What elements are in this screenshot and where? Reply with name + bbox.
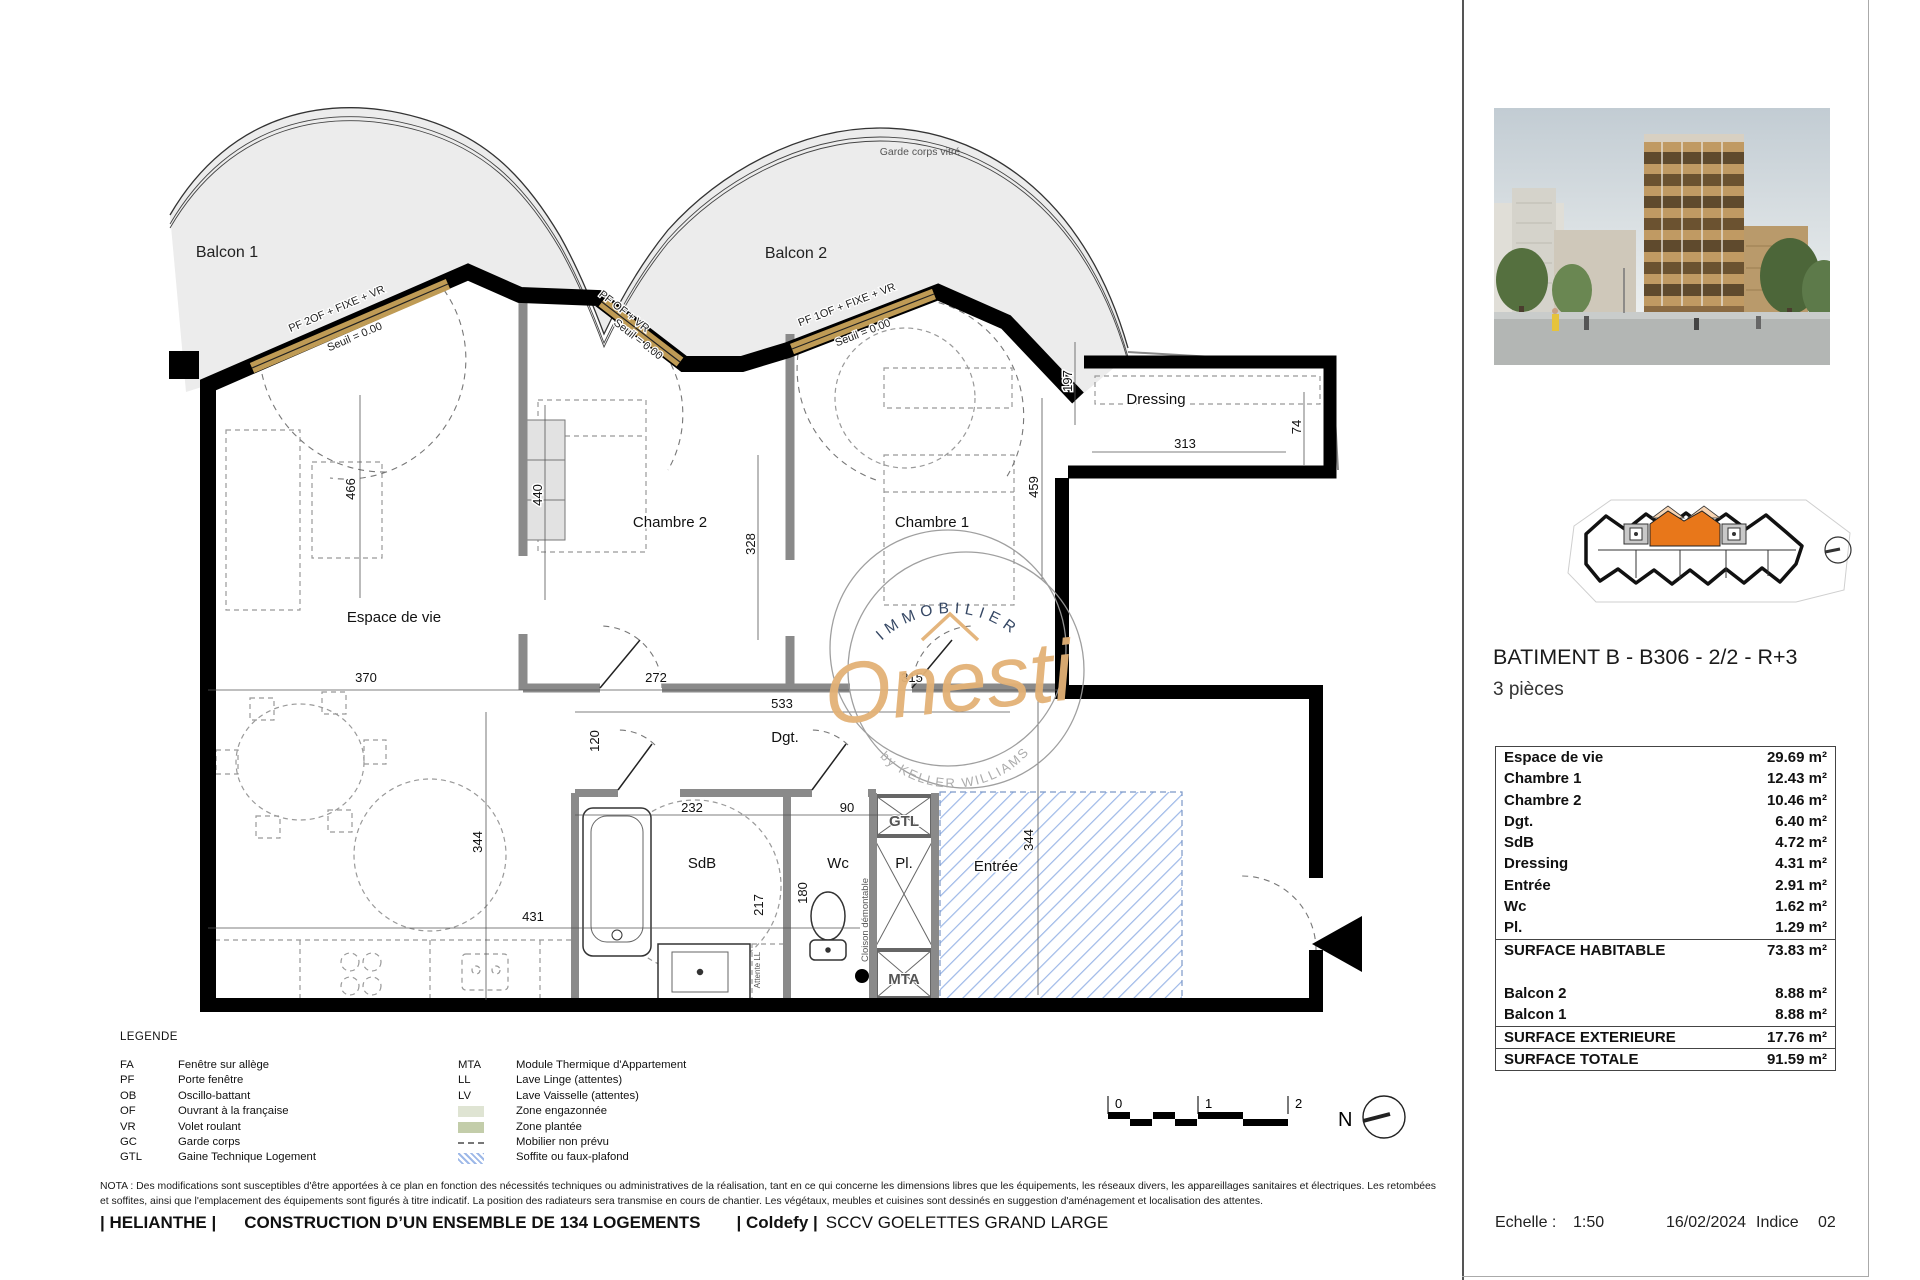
legend-label: Lave Vaisselle (attentes) — [516, 1089, 639, 1104]
indice-value: 02 — [1818, 1214, 1836, 1232]
legend: LEGENDE FAFenêtre sur allège PFPorte fen… — [120, 1030, 1120, 1057]
legend-label: Module Thermique d'Appartement — [516, 1058, 686, 1073]
entree-soffit-hatch — [940, 792, 1182, 1002]
table-row-surface-totale: SURFACE TOTALE91.59 m² — [1496, 1048, 1835, 1070]
legend-label: Mobilier non prévu — [516, 1135, 609, 1150]
dim-533: 533 — [771, 696, 793, 711]
table-row: Espace de vie29.69 m² — [1496, 747, 1835, 768]
footer-sccv: SCCV GOELETTES GRAND LARGE — [826, 1213, 1108, 1233]
furniture-dash-swatch — [458, 1142, 484, 1144]
nota-line-1: NOTA : Des modifications sont susceptibl… — [100, 1179, 1455, 1194]
dim-431: 431 — [522, 909, 544, 924]
nota-line-2: et soffites, ainsi que l'emplacement des… — [100, 1194, 1455, 1209]
dim-217: 217 — [751, 894, 766, 916]
dim-180: 180 — [795, 882, 810, 904]
dim-90: 90 — [840, 800, 854, 815]
north-label: N — [1338, 1109, 1352, 1131]
dim-466: 466 — [343, 478, 358, 500]
nota-text: NOTA : Des modifications sont susceptibl… — [100, 1179, 1455, 1209]
legend-abbr: OB — [120, 1089, 178, 1104]
legend-label: Fenêtre sur allège — [178, 1058, 269, 1073]
unit-title: BATIMENT B - B306 - 2/2 - R+3 — [1493, 645, 1798, 670]
legend-label: Soffite ou faux-plafond — [516, 1150, 629, 1165]
legend-label: Lave Linge (attentes) — [516, 1073, 622, 1088]
label-dgt: Dgt. — [771, 729, 799, 746]
scale-tick-0: 0 — [1115, 1096, 1122, 1111]
legend-label: Zone plantée — [516, 1120, 582, 1135]
legend-left-column: FAFenêtre sur allège PFPorte fenêtre OBO… — [120, 1058, 316, 1166]
timber-tower — [1644, 134, 1744, 314]
legend-abbr: VR — [120, 1120, 178, 1135]
soffit-hatch-swatch — [458, 1153, 484, 1164]
label-chambre-1: Chambre 1 — [895, 514, 969, 531]
scale-tick-2: 2 — [1295, 1096, 1302, 1111]
dim-459: 459 — [1026, 476, 1041, 498]
dim-328: 328 — [743, 533, 758, 555]
legend-abbr: LV — [458, 1089, 516, 1104]
scale-bar: 0 1 2 — [1108, 1096, 1302, 1126]
scale-value: 1:50 — [1573, 1214, 1604, 1232]
legend-label: Porte fenêtre — [178, 1073, 243, 1088]
label-entree: Entrée — [974, 858, 1018, 875]
legend-label: Garde corps — [178, 1135, 240, 1150]
table-row: Balcon 28.88 m² — [1496, 983, 1835, 1004]
legend-abbr: FA — [120, 1058, 178, 1073]
table-row: Balcon 18.88 m² — [1496, 1004, 1835, 1025]
watermark-keller-williams: by KELLER WILLIAMS — [878, 744, 1033, 791]
dim-232: 232 — [681, 800, 703, 815]
label-sdb: SdB — [688, 855, 716, 872]
legend-title: LEGENDE — [120, 1030, 1120, 1045]
table-row: Entrée2.91 m² — [1496, 875, 1835, 896]
legend-label: Gaine Technique Logement — [178, 1150, 316, 1165]
dim-344-right: 344 — [1021, 829, 1036, 851]
plan-sheet: 466 440 328 459 197 313 74 370 272 315 5… — [0, 0, 1920, 1280]
watermark-logo: IMMOBILIER Onesti by KELLER WILLIAMS — [820, 530, 1084, 791]
table-row: Pl.1.29 m² — [1496, 917, 1835, 938]
panel-right-border — [1868, 0, 1869, 1277]
dim-370: 370 — [355, 670, 377, 685]
legend-label: Volet roulant — [178, 1120, 241, 1135]
footer-project-title: CONSTRUCTION D’UN ENSEMBLE DE 134 LOGEME… — [244, 1213, 700, 1233]
panel-divider — [1462, 0, 1464, 1280]
wardrobe — [527, 420, 565, 540]
watermark-onesti: Onesti — [820, 622, 1080, 744]
bathroom-fixtures — [583, 808, 869, 1002]
table-row: Dressing4.31 m² — [1496, 853, 1835, 874]
planted-zone-swatch — [458, 1122, 484, 1133]
surface-table: Espace de vie29.69 m² Chambre 112.43 m² … — [1495, 746, 1836, 1071]
key-plan-compass — [1825, 537, 1851, 563]
footer-helianthe: | HELIANTHE | — [100, 1213, 216, 1233]
label-cloison-demontable: Cloison démontable — [860, 878, 871, 962]
wall-pier — [169, 351, 199, 379]
label-chambre-2: Chambre 2 — [633, 514, 707, 531]
date-value: 16/02/2024 — [1666, 1214, 1746, 1232]
table-row: Chambre 210.46 m² — [1496, 790, 1835, 811]
legend-abbr: PF — [120, 1073, 178, 1088]
dim-272: 272 — [645, 670, 667, 685]
dim-120: 120 — [587, 730, 602, 752]
balcony-area — [169, 108, 1338, 470]
label-pl: Pl. — [895, 855, 913, 872]
label-attente-ll: Attente LL — [753, 951, 762, 988]
legend-abbr: LL — [458, 1073, 516, 1088]
unit-subtitle: 3 pièces — [1493, 679, 1564, 701]
indice-label: Indice — [1756, 1214, 1799, 1232]
key-plan — [1556, 488, 1866, 613]
table-row: SdB4.72 m² — [1496, 832, 1835, 853]
legend-label: Ouvrant à la française — [178, 1104, 289, 1119]
dim-74: 74 — [1289, 420, 1304, 434]
table-row-spacer — [1496, 961, 1835, 983]
legend-abbr: GC — [120, 1135, 178, 1150]
legend-abbr: GTL — [120, 1150, 178, 1165]
table-row-surface-exterieure: SURFACE EXTERIEURE17.76 m² — [1496, 1026, 1835, 1048]
label-balcon-1: Balcon 1 — [196, 244, 258, 261]
table-row: Dgt.6.40 m² — [1496, 811, 1835, 832]
dim-440: 440 — [530, 484, 545, 506]
north-indicator: N — [1338, 1096, 1405, 1138]
toilet — [811, 892, 845, 940]
legend-label: Zone engazonnée — [516, 1104, 607, 1119]
building-render-photo — [1494, 108, 1830, 365]
label-balcon-2: Balcon 2 — [765, 245, 827, 262]
panel-bottom-border — [1462, 1276, 1868, 1277]
scale-tick-1: 1 — [1205, 1096, 1212, 1111]
label-garde-corps: Garde corps vitré — [880, 146, 961, 158]
table-row: Wc1.62 m² — [1496, 896, 1835, 917]
dim-344-left: 344 — [470, 831, 485, 853]
scale-label: Echelle : — [1495, 1214, 1556, 1232]
label-gtl: GTL — [889, 813, 919, 830]
dim-197: 197 — [1060, 370, 1075, 392]
label-dressing: Dressing — [1126, 391, 1185, 408]
legend-label: Oscillo-battant — [178, 1089, 250, 1104]
legend-right-column: MTAModule Thermique d'Appartement LLLave… — [458, 1058, 686, 1166]
footer-coldefy: | Coldefy | — [736, 1213, 817, 1233]
label-espace-de-vie: Espace de vie — [347, 609, 441, 626]
footer: | HELIANTHE | CONSTRUCTION D’UN ENSEMBLE… — [100, 1213, 1108, 1233]
dim-313: 313 — [1174, 436, 1196, 451]
table-row: Chambre 112.43 m² — [1496, 768, 1835, 789]
legend-abbr: OF — [120, 1104, 178, 1119]
label-wc: Wc — [827, 855, 849, 872]
table-row-surface-habitable: SURFACE HABITABLE73.83 m² — [1496, 939, 1835, 961]
label-mta: MTA — [888, 971, 920, 988]
legend-abbr: MTA — [458, 1058, 516, 1073]
grass-zone-swatch — [458, 1106, 484, 1117]
